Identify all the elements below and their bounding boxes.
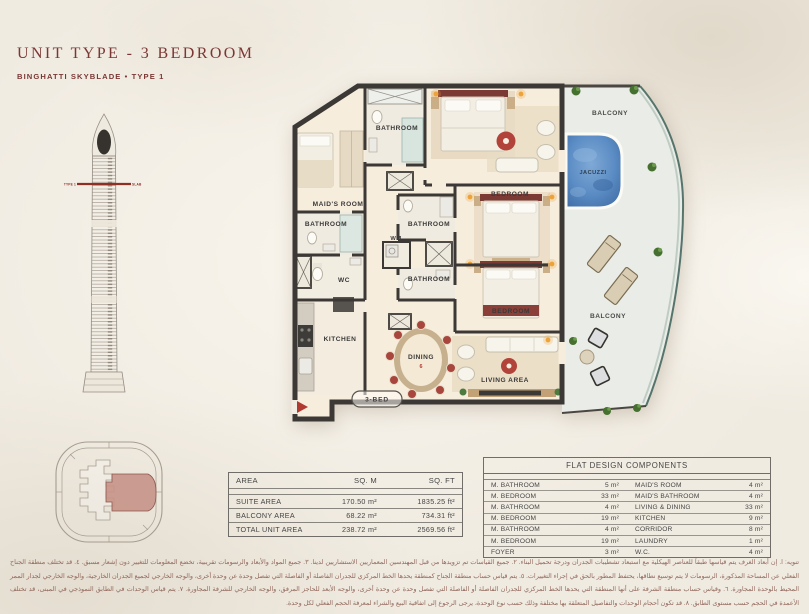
table-row: M. BATHROOM 5 m² MAID'S ROOM 4 m² bbox=[484, 480, 770, 491]
tower-body bbox=[91, 156, 117, 372]
component-area: 9 m² bbox=[729, 515, 763, 522]
area-col-header: AREA bbox=[236, 476, 305, 485]
area-row-sqm: 68.22 m² bbox=[305, 511, 377, 520]
sqft-col-header: SQ. FT bbox=[377, 476, 455, 485]
tower-dome bbox=[97, 130, 111, 155]
laundry-closet bbox=[383, 242, 410, 268]
stove bbox=[298, 325, 313, 347]
brochure-page: UNIT TYPE - 3 BEDROOM BINGHATTI SKYBLADE… bbox=[0, 0, 809, 614]
component-area: 33 m² bbox=[585, 493, 619, 500]
component-area: 4 m² bbox=[729, 493, 763, 500]
component-area: 3 m² bbox=[585, 549, 619, 556]
unit-type-badge-label: 3-BED bbox=[365, 397, 389, 404]
component-name: M. BATHROOM bbox=[491, 504, 585, 511]
room-label-wc: WC bbox=[338, 277, 350, 284]
area-row-sqm: 170.50 m² bbox=[305, 497, 377, 506]
area-row-label: TOTAL UNIT AREA bbox=[236, 525, 305, 534]
component-area: 4 m² bbox=[729, 482, 763, 489]
room-label-bathroom-top: BATHROOM bbox=[376, 125, 418, 132]
component-area: 4 m² bbox=[585, 526, 619, 533]
area-row-sqft: 2569.56 ft² bbox=[377, 525, 455, 534]
components-table-title: FLAT DESIGN COMPONENTS bbox=[484, 458, 770, 474]
component-name: CORRIDOR bbox=[635, 526, 729, 533]
component-name: MAID'S BATHROOM bbox=[635, 493, 729, 500]
component-area: 4 m² bbox=[585, 504, 619, 511]
table-row: BALCONY AREA 68.22 m² 734.31 ft² bbox=[229, 508, 462, 522]
dining-seat-count: 6 bbox=[420, 364, 423, 370]
jacuzzi-label: JACUZZI bbox=[579, 170, 606, 176]
wc-toilet bbox=[313, 268, 323, 281]
component-area: 1 m² bbox=[729, 538, 763, 545]
floor-plan: BALCONY BALCONY JACUZZI bbox=[280, 80, 700, 425]
room-label-living-area: LIVING AREA bbox=[481, 377, 529, 384]
room-label-bathroom-low: BATHROOM bbox=[408, 276, 450, 283]
flat-design-components-table: FLAT DESIGN COMPONENTS M. BATHROOM 5 m² … bbox=[483, 457, 771, 558]
tower-base bbox=[83, 372, 125, 392]
key-plan bbox=[46, 434, 174, 554]
component-area: 33 m² bbox=[729, 504, 763, 511]
area-row-label: BALCONY AREA bbox=[236, 511, 305, 520]
component-area: 5 m² bbox=[585, 482, 619, 489]
balcony-side-table bbox=[580, 350, 594, 364]
component-area: 19 m² bbox=[585, 538, 619, 545]
page-title: UNIT TYPE - 3 BEDROOM bbox=[17, 45, 254, 63]
table-row: M. BEDROOM 19 m² LAUNDRY 1 m² bbox=[484, 536, 770, 547]
unit-type-badge: 3-BED bbox=[352, 391, 402, 407]
table-row: M. BEDROOM 33 m² MAID'S BATHROOM 4 m² bbox=[484, 491, 770, 502]
table-row: TOTAL UNIT AREA 238.72 m² 2569.56 ft² bbox=[229, 522, 462, 536]
component-area: 4 m² bbox=[729, 549, 763, 556]
component-name: M. BATHROOM bbox=[491, 482, 585, 489]
room-label-dining: DINING bbox=[408, 354, 434, 361]
master-bed bbox=[438, 90, 508, 97]
area-table: AREA SQ. M SQ. FT SUITE AREA 170.50 m² 1… bbox=[228, 472, 463, 537]
room-label-maids-room: MAID'S ROOM bbox=[313, 201, 364, 208]
component-name: M. BEDROOM bbox=[491, 515, 585, 522]
component-name: M. BEDROOM bbox=[491, 538, 585, 545]
bathtub bbox=[368, 89, 422, 104]
balcony: BALCONY BALCONY JACUZZI bbox=[562, 86, 683, 416]
balcony-top-label: BALCONY bbox=[592, 110, 628, 117]
balcony-bottom-label: BALCONY bbox=[590, 313, 626, 320]
table-row: SUITE AREA 170.50 m² 1835.25 ft² bbox=[229, 494, 462, 508]
component-name: W.C. bbox=[635, 549, 729, 556]
component-name: LIVING & DINING bbox=[635, 504, 729, 511]
tower-elevation: TYPE 1 SLAB bbox=[62, 100, 146, 400]
room-label-wm: WM bbox=[390, 236, 401, 242]
table-row: M. BATHROOM 4 m² LIVING & DINING 33 m² bbox=[484, 502, 770, 513]
component-name: M. BATHROOM bbox=[491, 526, 585, 533]
sqm-col-header: SQ. M bbox=[305, 476, 377, 485]
area-table-header: AREA SQ. M SQ. FT bbox=[229, 473, 462, 488]
page-subtitle: BINGHATTI SKYBLADE • TYPE 1 bbox=[17, 72, 164, 81]
component-name: M. BEDROOM bbox=[491, 493, 585, 500]
room-label-bathroom-mid: BATHROOM bbox=[408, 221, 450, 228]
key-plan-unit-highlight bbox=[106, 474, 156, 511]
suite: 3-BED BATHROOM MAID'S ROOM BATHROOM BATH… bbox=[295, 86, 562, 419]
table-row: M. BEDROOM 19 m² KITCHEN 9 m² bbox=[484, 514, 770, 525]
area-row-sqft: 734.31 ft² bbox=[377, 511, 455, 520]
table-row: M. BATHROOM 4 m² CORRIDOR 8 m² bbox=[484, 525, 770, 536]
component-name: LAUNDRY bbox=[635, 538, 729, 545]
room-label-maids-bathroom: BATHROOM bbox=[305, 221, 347, 228]
room-label-bedroom-2: BEDROOM bbox=[491, 191, 529, 198]
room-label-bedroom-3: BEDROOM bbox=[492, 308, 530, 315]
component-name: MAID'S ROOM bbox=[635, 482, 729, 489]
area-row-sqft: 1835.25 ft² bbox=[377, 497, 455, 506]
arabic-disclaimer: تنويه: ا. إن أبعاد الغرف يتم قياسها طبقا… bbox=[10, 556, 799, 610]
component-name: FOYER bbox=[491, 549, 585, 556]
room-label-kitchen: KITCHEN bbox=[324, 336, 357, 343]
area-row-sqm: 238.72 m² bbox=[305, 525, 377, 534]
level-marker-left-label: TYPE 1 bbox=[64, 183, 76, 187]
component-name: KITCHEN bbox=[635, 515, 729, 522]
area-row-label: SUITE AREA bbox=[236, 497, 305, 506]
level-marker-right-label: SLAB bbox=[132, 183, 142, 187]
component-area: 8 m² bbox=[729, 526, 763, 533]
component-area: 19 m² bbox=[585, 515, 619, 522]
